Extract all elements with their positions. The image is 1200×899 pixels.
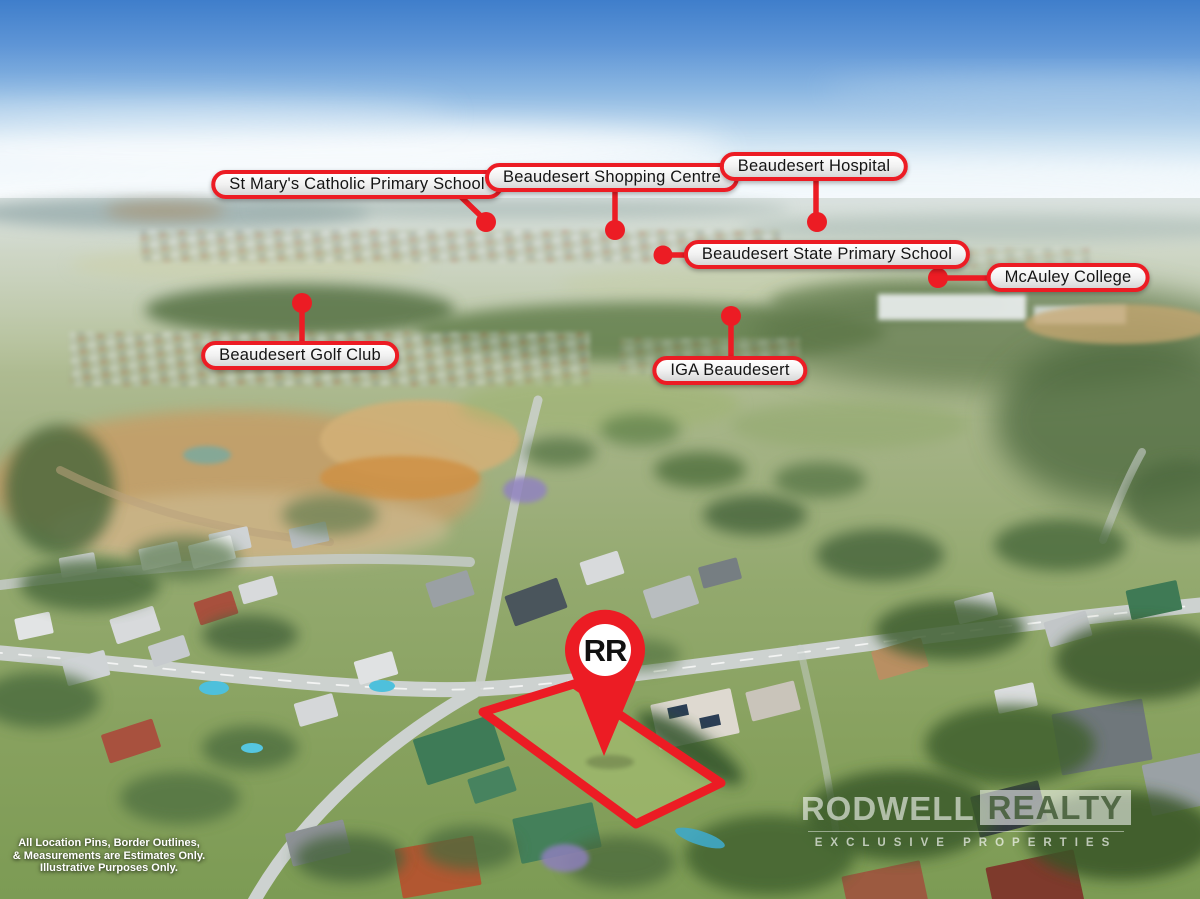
location-label-text: St Mary's Catholic Primary School: [229, 175, 485, 194]
location-label-st-marys-catholic-primary-school: St Mary's Catholic Primary School: [211, 170, 503, 199]
aerial-photo-backdrop: [0, 0, 1200, 899]
aerial-location-photo: RR St Mary's Catholic Primary School Bea…: [0, 0, 1200, 899]
location-label-iga-beaudesert: IGA Beaudesert: [652, 356, 807, 385]
agency-tagline: EXCLUSIVE PROPERTIES: [808, 831, 1124, 849]
location-label-text: McAuley College: [1005, 268, 1132, 287]
location-label-beaudesert-golf-club: Beaudesert Golf Club: [201, 341, 399, 370]
agency-brand-right: REALTY: [980, 790, 1132, 825]
location-label-text: IGA Beaudesert: [670, 361, 789, 380]
location-label-text: Beaudesert State Primary School: [702, 245, 952, 264]
agency-brand-left: RODWELL: [801, 792, 975, 825]
location-label-beaudesert-shopping-centre: Beaudesert Shopping Centre: [485, 163, 739, 192]
location-label-beaudesert-state-primary-school: Beaudesert State Primary School: [684, 240, 970, 269]
disclaimer-line: & Measurements are Estimates Only.: [4, 850, 214, 863]
disclaimer-note: All Location Pins, Border Outlines, & Me…: [4, 837, 214, 875]
location-label-mcauley-college: McAuley College: [987, 263, 1150, 292]
location-label-text: Beaudesert Shopping Centre: [503, 168, 721, 187]
location-label-text: Beaudesert Hospital: [738, 157, 890, 176]
agency-watermark: RODWELL REALTY EXCLUSIVE PROPERTIES: [808, 790, 1124, 849]
agency-brand: RODWELL REALTY: [808, 790, 1124, 825]
location-label-beaudesert-hospital: Beaudesert Hospital: [720, 152, 908, 181]
disclaimer-line: All Location Pins, Border Outlines,: [4, 837, 214, 850]
disclaimer-line: Illustrative Purposes Only.: [4, 862, 214, 875]
location-label-text: Beaudesert Golf Club: [219, 346, 381, 365]
